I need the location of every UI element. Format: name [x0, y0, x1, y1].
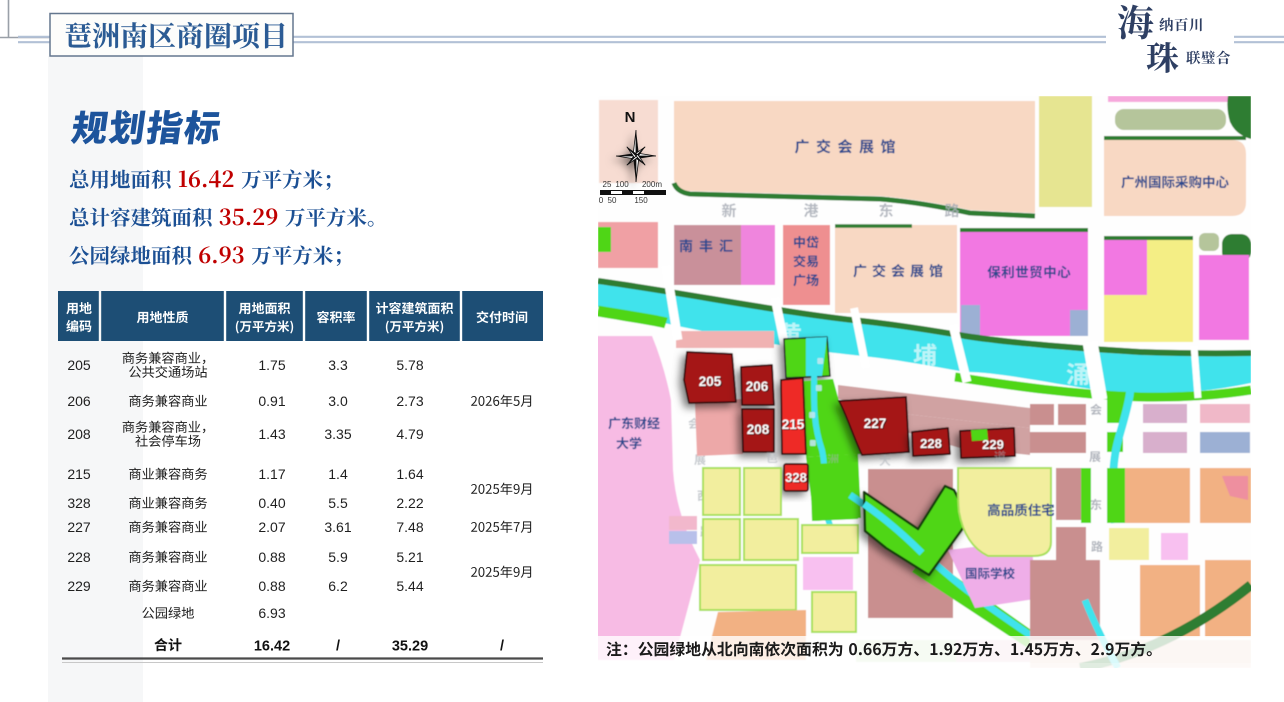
- svg-text:25: 25: [603, 180, 612, 189]
- svg-text:215: 215: [782, 417, 805, 432]
- svg-text:16.42: 16.42: [254, 639, 290, 655]
- svg-text:228: 228: [920, 436, 942, 451]
- svg-text:1.75: 1.75: [258, 357, 285, 373]
- svg-text:0.88: 0.88: [258, 549, 285, 565]
- svg-text:3.35: 3.35: [324, 426, 351, 442]
- svg-text:0.91: 0.91: [258, 393, 285, 409]
- svg-text:5.9: 5.9: [328, 549, 348, 565]
- svg-text:2.73: 2.73: [396, 393, 423, 409]
- svg-text:200m: 200m: [642, 180, 662, 189]
- svg-text:328: 328: [785, 470, 807, 485]
- svg-text:0.88: 0.88: [258, 578, 285, 594]
- svg-text:2.22: 2.22: [396, 495, 423, 511]
- svg-text:228: 228: [67, 549, 91, 565]
- svg-text:5.5: 5.5: [328, 495, 348, 511]
- svg-text:205: 205: [699, 374, 722, 389]
- svg-text:/: /: [500, 639, 504, 655]
- svg-text:328: 328: [67, 495, 91, 511]
- svg-text:50: 50: [608, 196, 617, 205]
- svg-text:150: 150: [634, 196, 648, 205]
- svg-text:1.17: 1.17: [258, 466, 285, 482]
- svg-text:5.44: 5.44: [396, 578, 423, 594]
- svg-text:/: /: [336, 639, 340, 655]
- svg-text:3.61: 3.61: [324, 519, 351, 535]
- svg-text:215: 215: [67, 466, 91, 482]
- svg-text:2.07: 2.07: [258, 519, 285, 535]
- svg-text:229: 229: [67, 578, 91, 594]
- svg-text:206: 206: [746, 379, 769, 394]
- svg-text:35.29: 35.29: [392, 639, 428, 655]
- svg-text:6.2: 6.2: [328, 578, 348, 594]
- svg-text:N: N: [625, 109, 636, 126]
- svg-text:5.78: 5.78: [396, 357, 423, 373]
- svg-text:7.48: 7.48: [396, 519, 423, 535]
- svg-text:0.40: 0.40: [258, 495, 285, 511]
- svg-text:227: 227: [864, 416, 887, 431]
- svg-text:208: 208: [747, 422, 770, 437]
- svg-text:3.3: 3.3: [328, 357, 348, 373]
- svg-text:6.93: 6.93: [258, 605, 285, 621]
- svg-text:1.43: 1.43: [258, 426, 285, 442]
- svg-text:205: 205: [67, 357, 91, 373]
- svg-text:5.21: 5.21: [396, 549, 423, 565]
- svg-text:3.0: 3.0: [328, 393, 348, 409]
- svg-text:1.4: 1.4: [328, 466, 348, 482]
- svg-text:206: 206: [67, 393, 91, 409]
- svg-text:208: 208: [67, 426, 91, 442]
- svg-text:229: 229: [982, 437, 1004, 452]
- svg-text:1.64: 1.64: [396, 466, 423, 482]
- svg-text:0: 0: [599, 196, 604, 205]
- svg-text:100: 100: [615, 180, 629, 189]
- svg-text:4.79: 4.79: [396, 426, 423, 442]
- svg-text:227: 227: [67, 519, 91, 535]
